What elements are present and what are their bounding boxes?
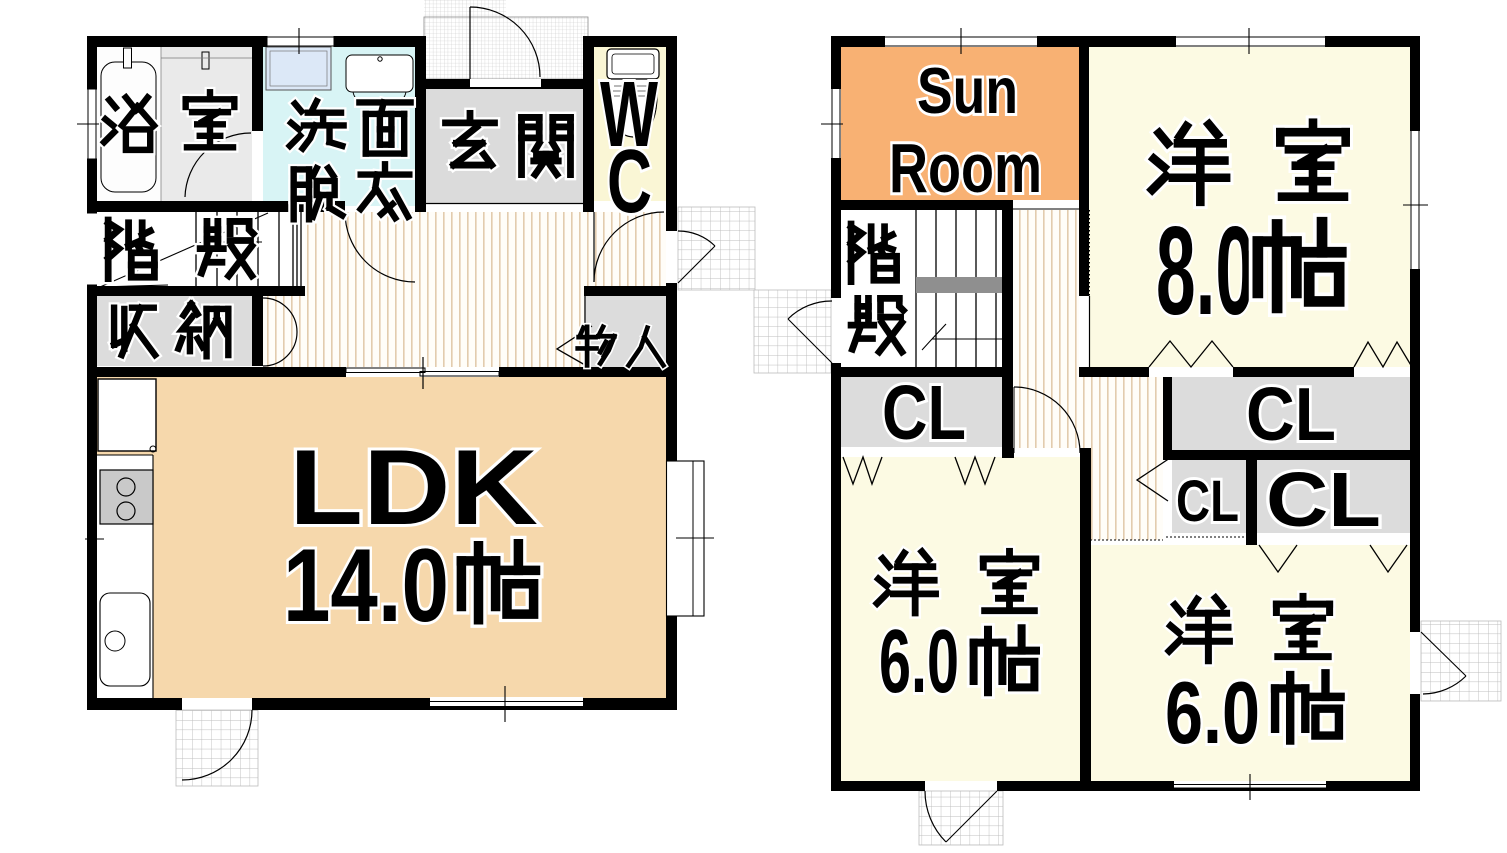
svg-text:8.0: 8.0 — [1156, 202, 1255, 341]
svg-text:14.0: 14.0 — [283, 528, 449, 644]
svg-text:CL: CL — [882, 370, 966, 456]
svg-text:Sun: Sun — [917, 54, 1018, 127]
svg-text:CL: CL — [1176, 469, 1239, 534]
svg-text:CL: CL — [1246, 372, 1336, 456]
svg-text:Room: Room — [889, 129, 1042, 207]
svg-text:C: C — [607, 132, 652, 232]
svg-text:6.0: 6.0 — [879, 612, 959, 712]
svg-text:CL: CL — [1266, 457, 1381, 543]
svg-text:6.0: 6.0 — [1165, 663, 1260, 762]
